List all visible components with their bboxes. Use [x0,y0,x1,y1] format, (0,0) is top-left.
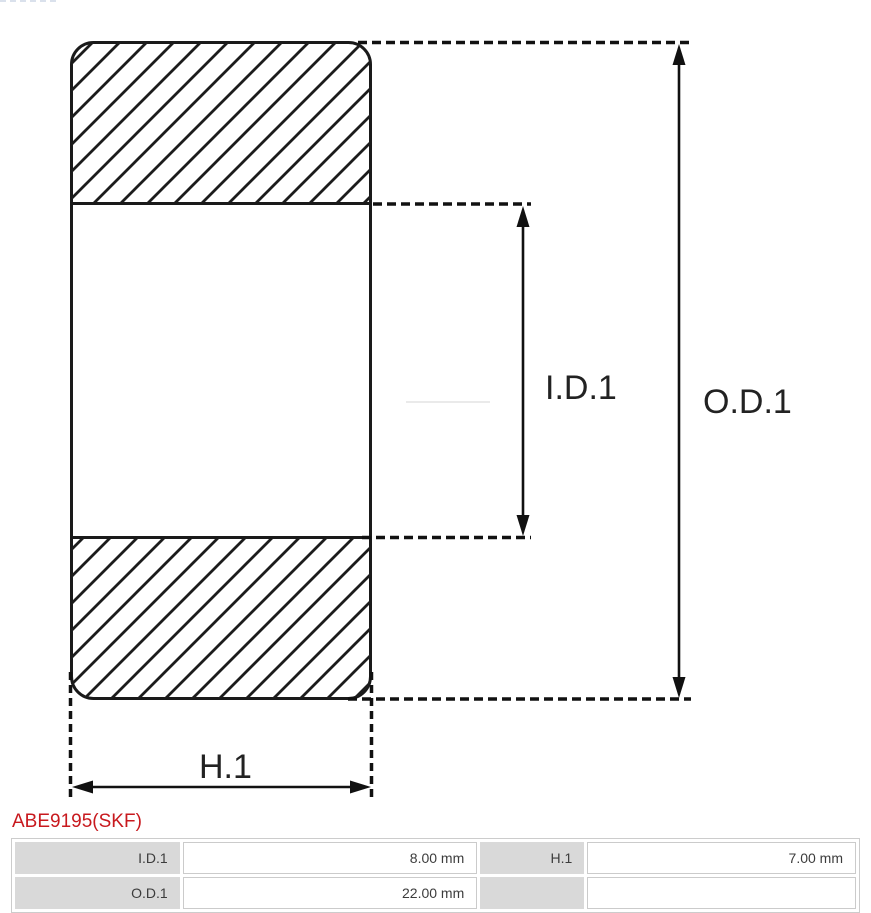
spec-row: I.D.1 8.00 mm H.1 7.00 mm [15,842,856,874]
spec-row: O.D.1 22.00 mm [15,877,856,909]
spec-label-od1: O.D.1 [15,877,180,909]
part-number-link[interactable]: ABE9195(SKF) [12,811,142,833]
bearing-diagram: I.D.1 O.D.1 H.1 [0,0,871,800]
top-race-hatch [70,41,372,204]
spec-value-od1: 22.00 mm [183,877,478,909]
spec-label-h1: H.1 [480,842,584,874]
spec-value-h1: 7.00 mm [587,842,856,874]
bearing-diagram-svg: I.D.1 O.D.1 H.1 [0,0,871,800]
spec-label-id1: I.D.1 [15,842,180,874]
page: I.D.1 O.D.1 H.1 ABE9195(SKF) I.D.1 8.00 … [0,0,871,913]
od1-dimension-arrow [673,44,686,698]
od1-label: O.D.1 [703,383,792,421]
id1-dimension-arrow [517,206,530,536]
spec-table: I.D.1 8.00 mm H.1 7.00 mm O.D.1 22.00 mm [11,838,860,913]
h1-label: H.1 [199,748,252,786]
bottom-race-hatch [70,537,372,700]
spec-value-id1: 8.00 mm [183,842,478,874]
spec-value-empty [587,877,856,909]
spec-label-empty [480,877,584,909]
id1-label: I.D.1 [545,369,617,407]
